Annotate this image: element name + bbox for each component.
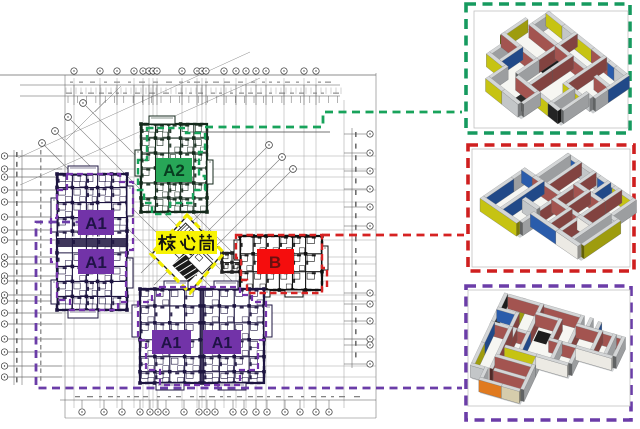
svg-text:A1: A1 [85,214,107,233]
svg-text:A1: A1 [85,253,107,272]
svg-text:A2: A2 [163,161,185,180]
svg-text:A1: A1 [212,335,233,352]
svg-text:B: B [269,253,281,272]
svg-text:A1: A1 [161,335,182,352]
